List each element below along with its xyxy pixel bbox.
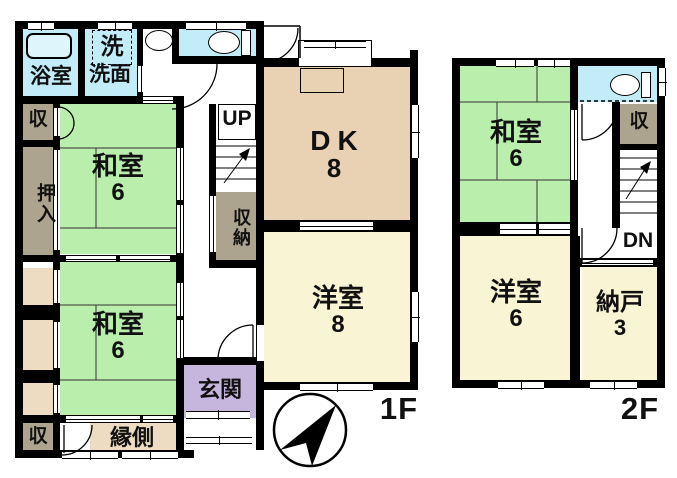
stairs-dn-label: DN xyxy=(619,230,657,253)
room-label-dk: DK8 xyxy=(295,126,373,184)
room-label-storage-2f: 収 xyxy=(624,112,654,133)
room-label-laundry: 洗 xyxy=(92,34,132,59)
room-label-nando-2f: 納戸3 xyxy=(588,290,652,340)
floor-plate-2f: 2F xyxy=(616,392,664,425)
room-label-washitsu-a: 和室6 xyxy=(78,152,158,206)
misc-lines xyxy=(258,26,655,101)
door-arcs xyxy=(58,28,618,455)
room-label-storage-bottom: 収 xyxy=(24,427,52,448)
room-label-youshitsu8: 洋室8 xyxy=(298,284,378,338)
room-label-oshiire: 押入 xyxy=(24,168,54,240)
floor-plate-1f: 1F xyxy=(376,392,422,425)
stairs-up-label: UP xyxy=(219,108,255,131)
room-label-storage-top: 収 xyxy=(24,110,52,131)
room-label-washitsu-2f: 和室6 xyxy=(477,118,555,172)
room-label-bath: 浴室 xyxy=(22,66,80,89)
room-label-shuno: 収納 xyxy=(222,198,250,258)
stairs-2f-icon xyxy=(620,158,657,213)
room-label-washitsu-b: 和室6 xyxy=(78,310,158,364)
room-label-genkan: 玄関 xyxy=(188,378,252,402)
compass-north-icon xyxy=(274,394,346,466)
room-label-washroom: 洗面 xyxy=(80,64,140,87)
room-label-engawa: 縁側 xyxy=(96,426,168,450)
stairs-1f-icon xyxy=(216,146,256,183)
floor-plan: 浴室 洗 洗面 収 押入 和室6 和室6 UP 収納 DK8 洋室8 玄関 縁側… xyxy=(0,0,677,478)
room-label-youshitsu-2f: 洋室6 xyxy=(477,278,555,332)
